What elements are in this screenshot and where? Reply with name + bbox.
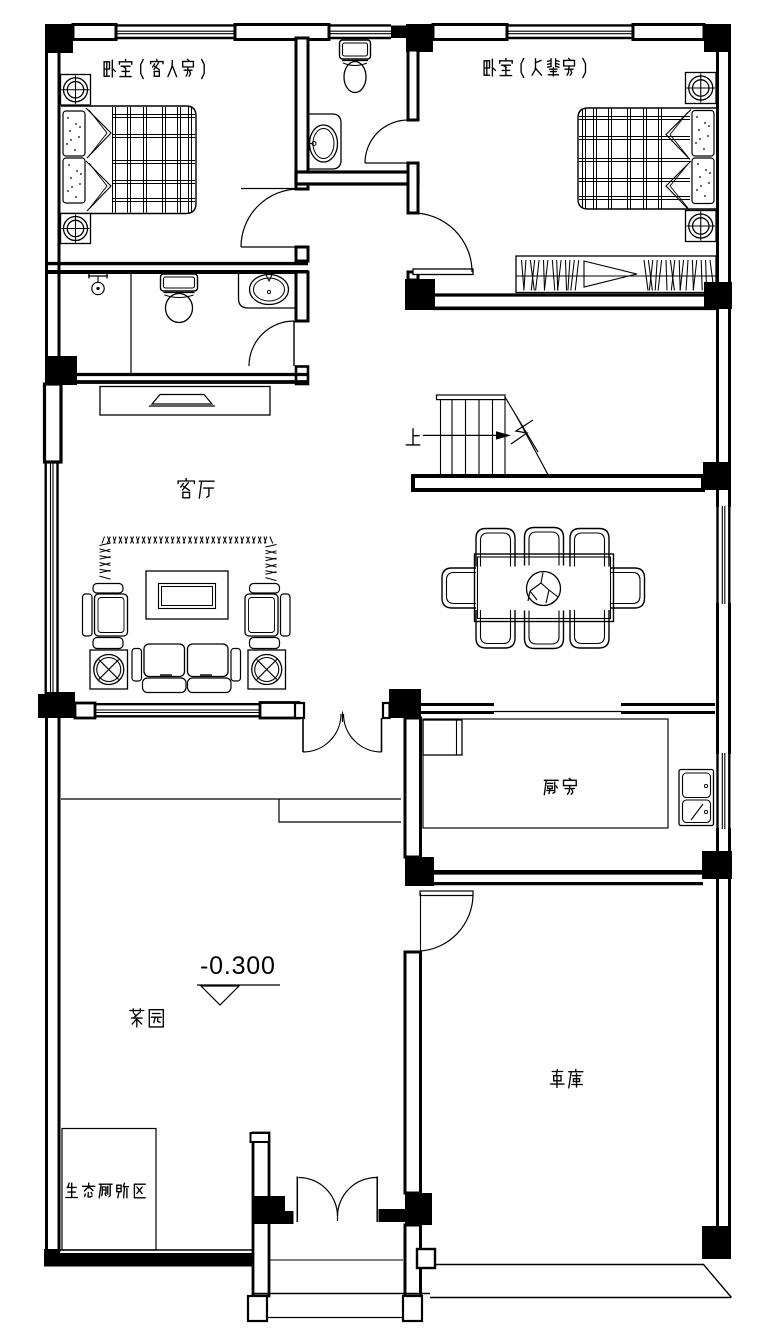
svg-text:-0.300: -0.300 xyxy=(200,952,276,980)
